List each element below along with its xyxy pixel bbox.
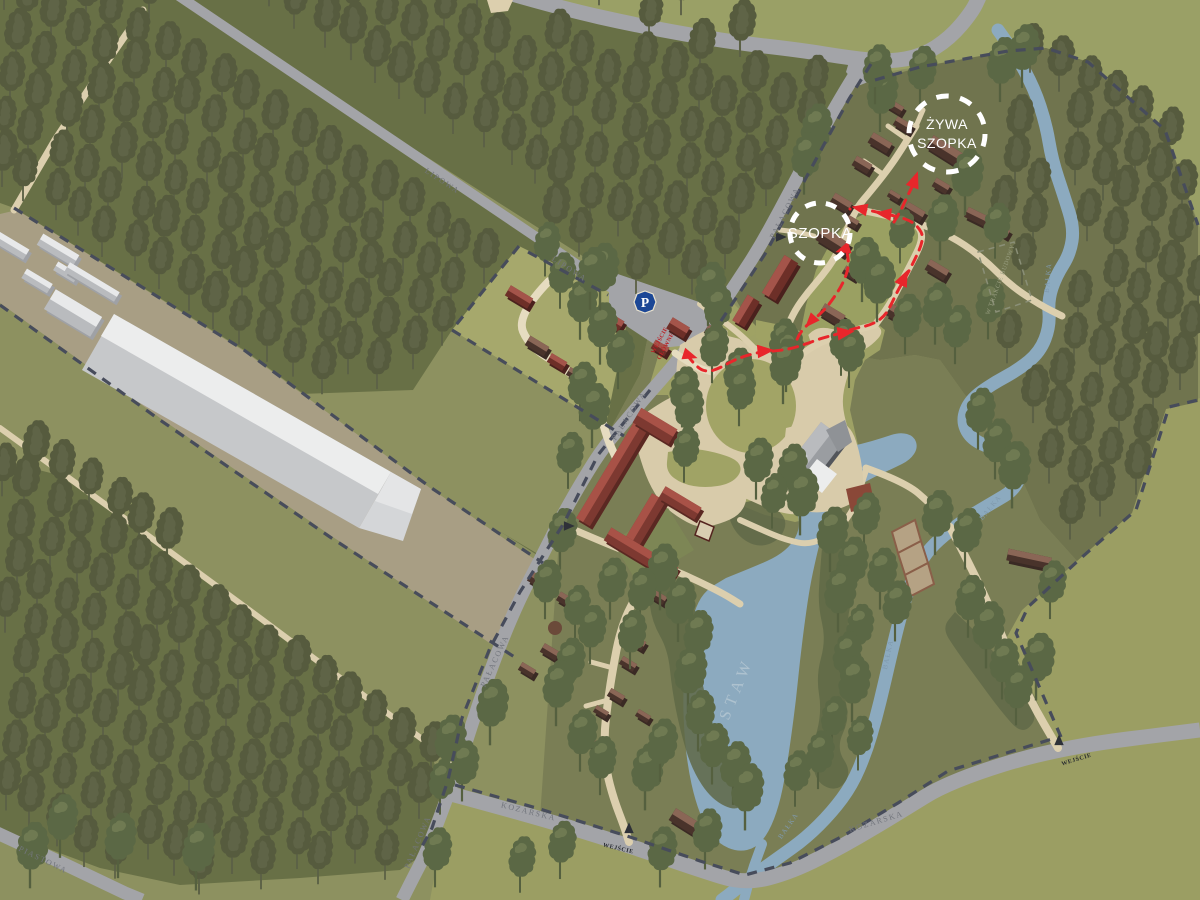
svg-text:SZOPKA: SZOPKA — [917, 135, 977, 151]
svg-text:ŻYWA: ŻYWA — [926, 115, 968, 132]
svg-text:SZOPKA: SZOPKA — [788, 225, 852, 242]
svg-text:P: P — [641, 295, 649, 310]
